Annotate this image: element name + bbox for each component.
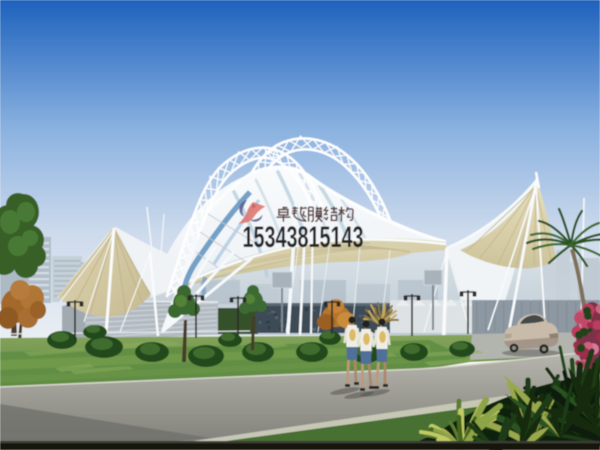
svg-text:15343815143: 15343815143 xyxy=(243,221,364,254)
